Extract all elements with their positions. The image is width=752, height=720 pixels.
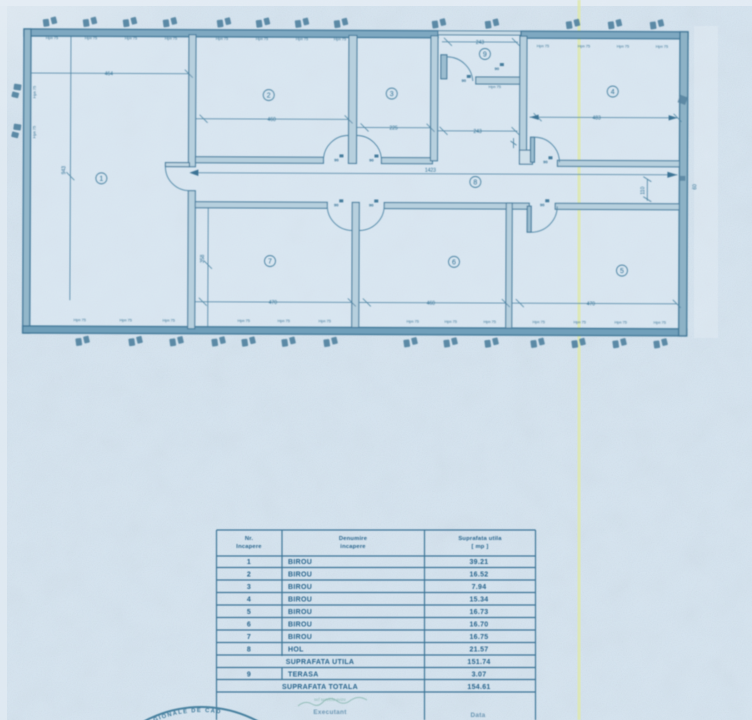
svg-text:Executant: Executant	[313, 709, 347, 716]
svg-text:Denumire: Denumire	[339, 536, 368, 542]
svg-text:6: 6	[452, 259, 456, 266]
svg-text:60: 60	[692, 184, 698, 190]
svg-text:90: 90	[495, 66, 500, 71]
svg-text:Hpn 75: Hpn 75	[163, 319, 175, 323]
svg-text:Hpn 75: Hpn 75	[238, 319, 250, 323]
svg-text:BIROU: BIROU	[288, 597, 312, 604]
svg-text:BIROU: BIROU	[288, 622, 312, 629]
svg-text:483: 483	[592, 115, 601, 121]
svg-text:Hpn 75: Hpn 75	[165, 37, 177, 41]
svg-text:3: 3	[390, 91, 394, 98]
svg-text:1423: 1423	[425, 168, 436, 174]
svg-text:90: 90	[462, 78, 467, 83]
svg-text:9: 9	[483, 51, 487, 58]
svg-text:154.61: 154.61	[467, 684, 490, 691]
svg-text:Hpn 75: Hpn 75	[278, 319, 290, 323]
svg-text:16.75: 16.75	[469, 634, 488, 641]
svg-text:225: 225	[389, 126, 398, 132]
svg-text:358: 358	[200, 254, 206, 263]
svg-text:Hpn 75: Hpn 75	[334, 37, 346, 41]
svg-text:Hpn 75: Hpn 75	[74, 318, 86, 322]
svg-text:Hpn 75: Hpn 75	[617, 45, 629, 49]
svg-text:Hpn 75: Hpn 75	[654, 321, 666, 325]
svg-text:460: 460	[427, 301, 436, 307]
svg-text:7.94: 7.94	[472, 584, 487, 591]
svg-text:Hpn 75: Hpn 75	[537, 44, 549, 48]
svg-text:Hpn 75: Hpn 75	[33, 86, 37, 98]
svg-text:90: 90	[369, 157, 374, 162]
svg-text:90: 90	[369, 202, 374, 207]
svg-text:Hpn 75: Hpn 75	[216, 37, 228, 41]
svg-text:16.52: 16.52	[469, 572, 488, 579]
svg-text:9: 9	[247, 672, 251, 679]
svg-text:21.57: 21.57	[469, 647, 488, 654]
svg-text:243: 243	[476, 40, 485, 46]
svg-text:8: 8	[473, 179, 477, 186]
svg-text:7: 7	[268, 259, 272, 266]
svg-text:Nr.: Nr.	[245, 536, 254, 542]
svg-text:Suprafata utila: Suprafata utila	[458, 536, 502, 542]
svg-text:3: 3	[247, 584, 251, 591]
svg-text:90: 90	[334, 157, 339, 162]
svg-text:3.07: 3.07	[472, 672, 487, 679]
svg-text:1: 1	[99, 176, 103, 183]
svg-text:BIROU: BIROU	[288, 572, 312, 579]
svg-text:4: 4	[247, 597, 251, 604]
svg-text:15.34: 15.34	[469, 597, 488, 604]
svg-text:HOL: HOL	[288, 647, 304, 654]
svg-text:4: 4	[611, 89, 615, 96]
svg-text:Hpn 75: Hpn 75	[615, 321, 627, 325]
svg-text:470: 470	[269, 300, 278, 306]
svg-text:Data: Data	[470, 712, 485, 719]
svg-text:7: 7	[247, 634, 251, 641]
svg-text:151.74: 151.74	[467, 659, 490, 666]
svg-text:16.70: 16.70	[469, 622, 488, 629]
svg-text:Hpn 75: Hpn 75	[125, 36, 137, 40]
svg-text:90: 90	[540, 202, 545, 207]
svg-text:Hpn 75: Hpn 75	[578, 44, 590, 48]
svg-text:16.73: 16.73	[469, 609, 488, 616]
svg-text:Incapere: Incapere	[236, 544, 262, 550]
svg-text:incapere: incapere	[340, 544, 366, 550]
svg-text:BIROU: BIROU	[288, 559, 312, 566]
svg-text:Hpn 75: Hpn 75	[319, 319, 331, 323]
svg-text:464: 464	[105, 71, 114, 77]
svg-text:BIROU: BIROU	[288, 609, 312, 616]
svg-text:[ mp ]: [ mp ]	[472, 544, 489, 550]
svg-text:39.21: 39.21	[469, 559, 488, 566]
svg-text:2: 2	[247, 572, 251, 579]
svg-text:Hpn 75: Hpn 75	[33, 126, 37, 138]
svg-text:BIROU: BIROU	[288, 634, 312, 641]
svg-text:SUPRAFATA UTILA: SUPRAFATA UTILA	[286, 659, 355, 666]
svg-text:Hpn 75: Hpn 75	[120, 318, 132, 322]
svg-text:Hpn 75: Hpn 75	[656, 45, 668, 49]
svg-text:8: 8	[247, 647, 251, 654]
svg-text:Hpn 75: Hpn 75	[489, 85, 501, 89]
svg-text:SUPRAFATA TOTALA: SUPRAFATA TOTALA	[282, 684, 358, 691]
svg-text:90: 90	[334, 202, 339, 207]
svg-text:243: 243	[473, 129, 482, 135]
svg-text:5: 5	[620, 268, 624, 275]
svg-text:1: 1	[247, 559, 251, 566]
svg-text:TERASA: TERASA	[288, 672, 319, 679]
svg-text:Hpn 75: Hpn 75	[46, 36, 58, 40]
svg-text:BIROU: BIROU	[288, 584, 312, 591]
svg-text:Hpn 75: Hpn 75	[445, 320, 457, 324]
svg-text:943: 943	[61, 166, 67, 175]
svg-text:6: 6	[247, 622, 251, 629]
svg-text:Hpn 75: Hpn 75	[574, 320, 586, 324]
svg-text:sef serviciu avize: sef serviciu avize	[314, 697, 347, 702]
svg-text:470: 470	[587, 301, 596, 307]
svg-text:Hpn 75: Hpn 75	[533, 320, 545, 324]
svg-text:Hpn 75: Hpn 75	[85, 36, 97, 40]
svg-text:5: 5	[247, 609, 251, 616]
svg-text:110: 110	[640, 186, 646, 194]
svg-text:460: 460	[267, 117, 276, 123]
svg-text:Hpn 75: Hpn 75	[296, 37, 308, 41]
svg-text:Hpn 75: Hpn 75	[484, 320, 496, 324]
svg-text:Hpn 75: Hpn 75	[256, 37, 268, 41]
svg-text:Hpn 75: Hpn 75	[407, 320, 419, 324]
svg-text:2: 2	[267, 93, 271, 100]
svg-text:90: 90	[543, 159, 548, 164]
